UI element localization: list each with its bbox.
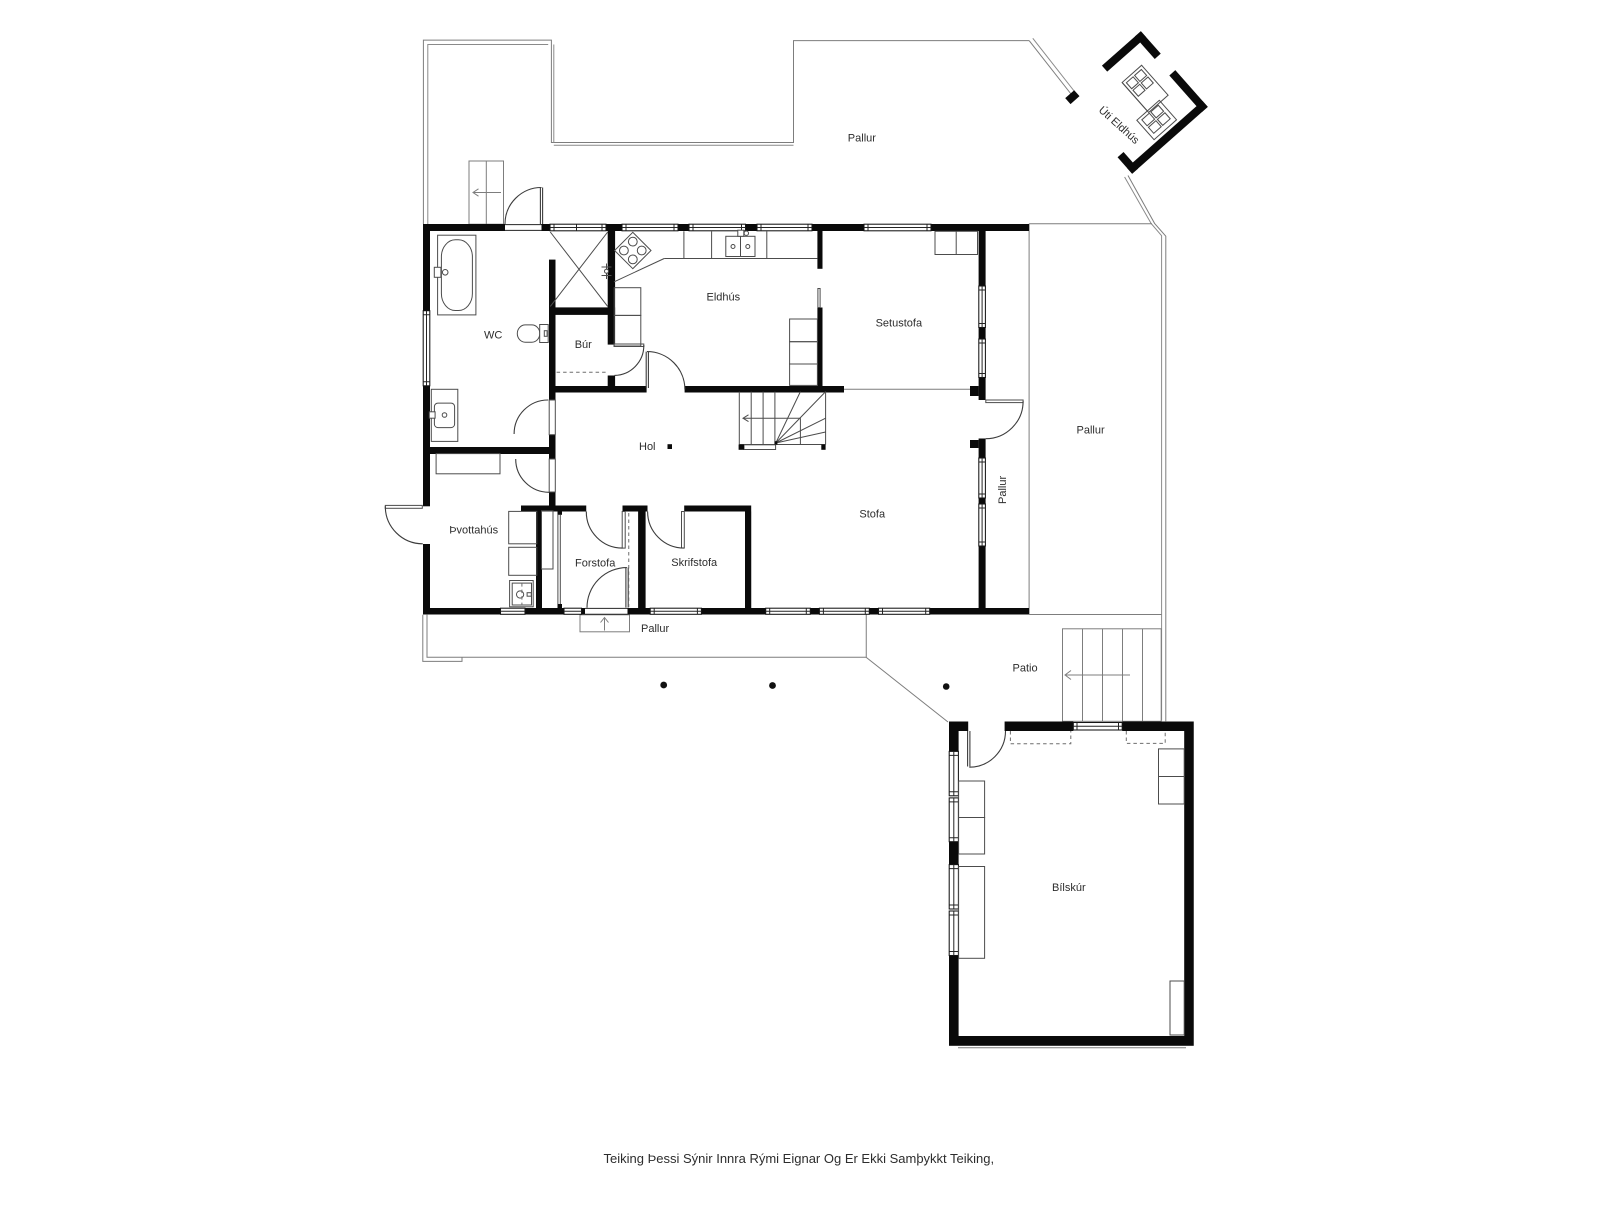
svg-text:Búr: Búr — [575, 339, 592, 351]
svg-text:Forstofa: Forstofa — [575, 557, 616, 569]
svg-text:Patio: Patio — [1013, 663, 1038, 675]
svg-text:Þvottahús: Þvottahús — [449, 524, 498, 536]
svg-text:Eldhús: Eldhús — [707, 291, 741, 303]
svg-text:Teiking Þessi Sýnir Innra Rými: Teiking Þessi Sýnir Innra Rými Eignar Og… — [604, 1151, 995, 1166]
svg-text:Pallur: Pallur — [848, 132, 876, 144]
svg-text:Hol: Hol — [639, 441, 656, 453]
svg-text:Setustofa: Setustofa — [876, 318, 923, 330]
svg-text:Pallur: Pallur — [1077, 425, 1105, 437]
svg-text:Bílskúr: Bílskúr — [1052, 882, 1086, 894]
svg-text:Stofa: Stofa — [859, 509, 886, 521]
svg-text:WC: WC — [484, 330, 502, 342]
svg-text:Skrifstofa: Skrifstofa — [671, 557, 718, 569]
svg-text:Pallur: Pallur — [641, 623, 669, 635]
svg-text:Pallur: Pallur — [997, 476, 1009, 504]
